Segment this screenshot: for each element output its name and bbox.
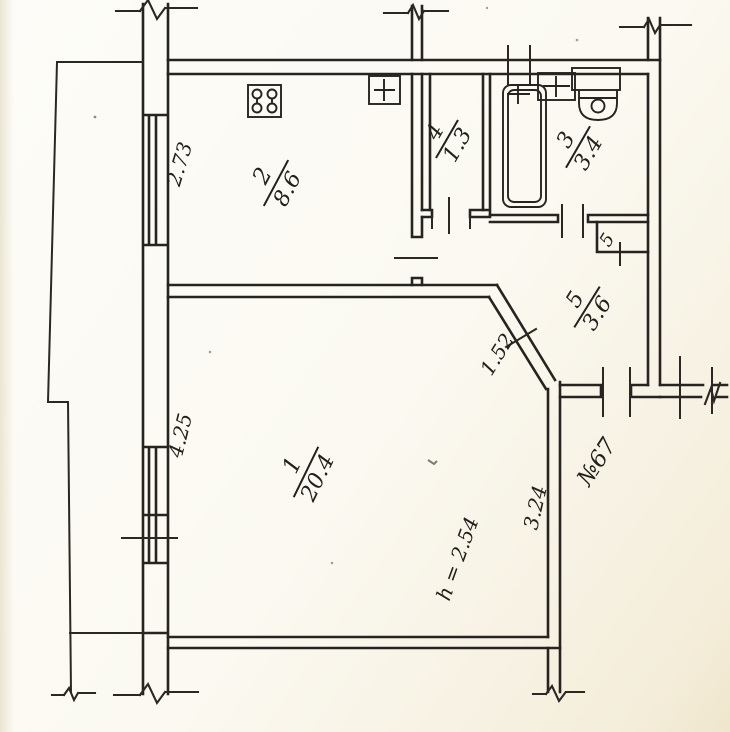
wall-right [648, 60, 660, 385]
wall-top-exterior [168, 60, 660, 74]
room-label-kitchen: 2 8.6 [239, 147, 311, 218]
cut-top-stub-b [620, 19, 691, 33]
room-number: 1 [278, 453, 308, 478]
wall-living-right [548, 382, 560, 692]
speck-mark [428, 460, 437, 464]
stove-icon [248, 85, 281, 117]
speck [576, 39, 579, 42]
balcony-outline [48, 62, 143, 692]
speck [486, 7, 488, 9]
balcony [48, 62, 143, 692]
bathtub-icon [503, 84, 546, 207]
cut-top-left-wall [116, 0, 197, 19]
tick-room4-door [432, 198, 470, 233]
cut-bottom-left-wall [114, 684, 198, 703]
apartment-number-label: №67 [572, 433, 622, 491]
cut-bottom-entry-wall [533, 686, 584, 701]
toilet-icon [572, 68, 620, 120]
closet-number-label: 5 [595, 230, 619, 251]
wall-cut-symbols [52, 0, 720, 703]
scanned-floor-plan-page: 1 20.4 2 8.6 3 3.4 4 1.3 5 3.6 5 2.73 4.… [0, 0, 730, 732]
wall-room4-bottom [422, 210, 490, 217]
tick-right-exterior [680, 357, 712, 418]
cut-bottom-balcony-line [52, 688, 95, 700]
kitchen-sink-icon [369, 76, 400, 104]
speck [209, 351, 212, 354]
room-label-living: 1 20.4 [269, 435, 342, 509]
room-label-bath: 3 3.4 [543, 113, 611, 180]
wall-kitchen-living [168, 285, 497, 297]
wall-room4-right [483, 74, 490, 215]
wall-kitchen-right [412, 74, 430, 285]
room-label-pantry: 4 1.3 [413, 107, 479, 171]
speck [94, 116, 97, 119]
wall-room3-bottom [490, 215, 648, 222]
dim-kitchen-window: 2.73 [161, 139, 197, 190]
ceiling-height-label: h = 2.54 [431, 514, 483, 604]
tick-room3-door [562, 205, 583, 237]
room-label-hall: 5 3.6 [552, 273, 621, 341]
washbasin-icon [538, 73, 575, 100]
dimension-labels: 2.73 4.25 1.52 3.24 h = 2.54 №67 [161, 139, 622, 603]
wall-entry [560, 385, 660, 397]
wall-stub-top-right [648, 18, 660, 60]
speck [331, 562, 334, 565]
floor-plan-drawing: 1 20.4 2 8.6 3 3.4 4 1.3 5 3.6 5 2.73 4.… [0, 0, 730, 732]
room-number: 2 [247, 163, 277, 189]
wall-living-bottom [168, 637, 560, 648]
tick-entry-door [603, 368, 630, 416]
tick-top-wall-bath [508, 46, 530, 84]
tick-marks [122, 46, 712, 538]
cut-top-stub-a [384, 5, 448, 19]
wall-left-exterior [143, 4, 168, 694]
